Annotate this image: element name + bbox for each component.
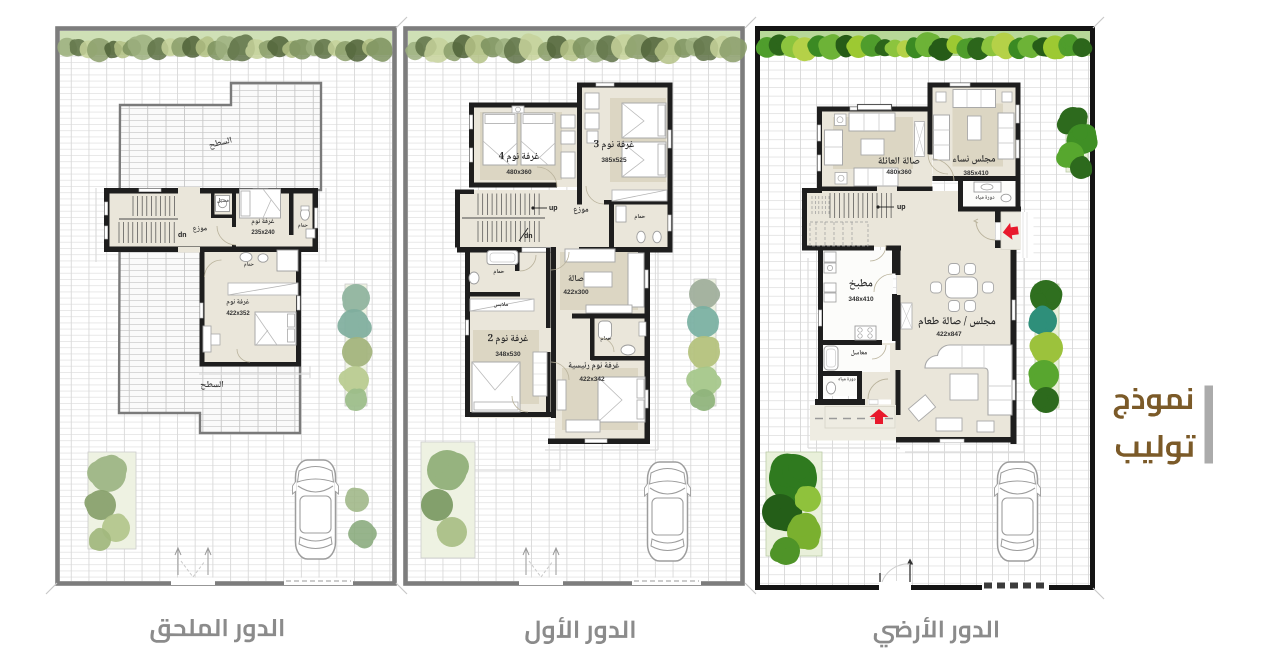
svg-text:dn: dn [524,233,533,240]
svg-text:480x360: 480x360 [506,169,532,176]
svg-text:up: up [897,204,906,211]
svg-text:up: up [549,205,558,212]
svg-text:422x300: 422x300 [563,289,589,296]
svg-text:422x342: 422x342 [579,376,605,383]
svg-text:348x530: 348x530 [495,351,521,358]
svg-text:385x525: 385x525 [601,157,627,164]
svg-text:348x410: 348x410 [848,296,874,303]
svg-text:422x847: 422x847 [936,331,962,338]
svg-text:422x352: 422x352 [226,311,250,317]
svg-text:480x360: 480x360 [886,169,912,176]
svg-text:385x410: 385x410 [963,170,989,177]
svg-text:235x240: 235x240 [251,230,275,236]
svg-text:dn: dn [178,232,187,239]
